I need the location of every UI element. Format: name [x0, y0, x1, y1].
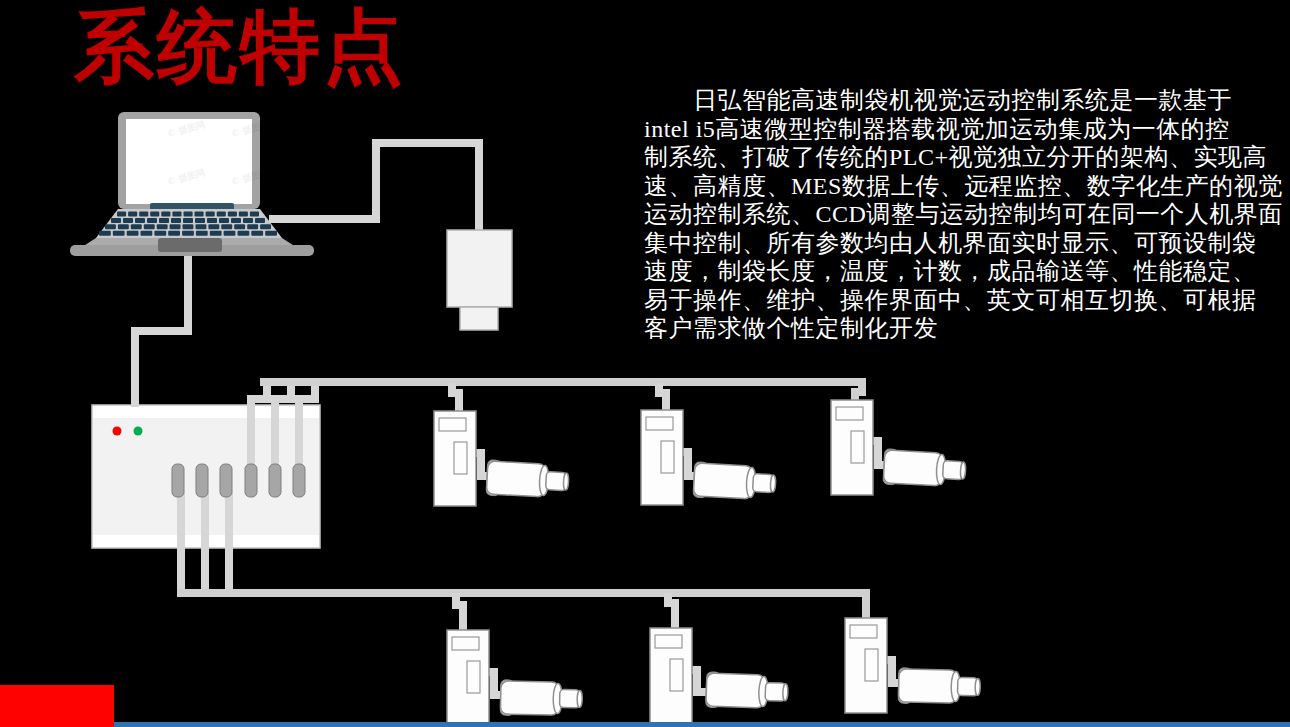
- laptop-key: [171, 218, 181, 223]
- controller-port-4: [245, 464, 257, 497]
- laptop-icon: © 摄图网 © 摄图网 © 摄图网 © 摄图网: [70, 112, 314, 256]
- laptop-key: [239, 212, 248, 217]
- servo-drive-icon-6: [845, 618, 887, 713]
- signal-bus-top: [260, 382, 862, 403]
- servo-drive-icon-5: [650, 628, 692, 723]
- bus-drop-top-1: [452, 383, 459, 413]
- laptop-key: [159, 218, 169, 223]
- servo-motors: [486, 449, 980, 716]
- servo-motor-icon-1: [486, 460, 569, 499]
- laptop-key: [147, 218, 157, 223]
- bus-drop-bottom-1: [456, 593, 463, 632]
- status-led-green: [134, 427, 143, 436]
- slide: 系统特点 日弘智能高速制袋机视觉运动控制系统是一款基于intel i5高速微型控…: [0, 0, 1290, 727]
- laptop-key: [265, 231, 277, 236]
- laptop-key: [210, 231, 222, 236]
- servo-drives: [434, 400, 887, 725]
- servo-motor-icon-4: [500, 680, 582, 716]
- laptop-touchpad: [158, 238, 222, 252]
- laptop-key: [99, 231, 111, 236]
- laptop-key: [170, 224, 181, 229]
- laptop-key: [184, 212, 193, 217]
- laptop-key: [135, 218, 145, 223]
- laptop-key: [196, 224, 207, 229]
- laptop-key: [105, 224, 116, 229]
- laptop-key: [117, 212, 126, 217]
- laptop-key: [141, 231, 153, 236]
- controller-port-2: [196, 464, 208, 497]
- controller-port-6: [293, 464, 305, 497]
- laptop-key: [260, 224, 271, 229]
- laptop-key: [238, 231, 250, 236]
- laptop-key: [221, 224, 232, 229]
- red-accent-block: [0, 685, 114, 727]
- controller-port-5: [269, 464, 281, 497]
- camera-lens: [460, 307, 498, 330]
- laptop-key: [182, 231, 194, 236]
- bus-drop-top-2: [659, 383, 666, 412]
- laptop-key: [139, 212, 148, 217]
- laptop-key: [228, 212, 237, 217]
- controller-port-1: [172, 464, 184, 497]
- laptop-key: [250, 212, 259, 217]
- servo-motor-icon-5: [706, 672, 789, 710]
- servo-drive-icon-1: [434, 411, 476, 506]
- laptop-key: [247, 224, 258, 229]
- servo-drive-icon-4: [447, 630, 489, 725]
- laptop-key: [183, 218, 193, 223]
- laptop-key: [255, 218, 265, 223]
- system-diagram: © 摄图网 © 摄图网 © 摄图网 © 摄图网: [0, 0, 1290, 727]
- laptop-key: [161, 212, 170, 217]
- laptop-key: [123, 218, 133, 223]
- laptop-key: [111, 218, 121, 223]
- laptop-key: [251, 231, 263, 236]
- laptop-key: [206, 212, 215, 217]
- bus-drop-bottom-2: [668, 593, 675, 630]
- bottom-blue-bar: [114, 722, 1290, 727]
- laptop-key: [150, 212, 159, 217]
- laptop-key: [131, 224, 142, 229]
- cable-laptop-to-camera: [269, 143, 479, 232]
- laptop-key: [196, 231, 208, 236]
- controller-top-strip: [93, 406, 319, 418]
- servo-drive-icon-3: [831, 400, 873, 495]
- laptop-key: [172, 212, 181, 217]
- laptop-key: [144, 224, 155, 229]
- servo-drive-icon-2: [641, 410, 683, 505]
- laptop-key: [157, 224, 168, 229]
- laptop-key: [183, 224, 194, 229]
- laptop-key: [113, 231, 125, 236]
- laptop-key: [168, 231, 180, 236]
- laptop-key: [217, 212, 226, 217]
- servo-motor-icon-6: [898, 668, 980, 704]
- laptop-key: [195, 218, 205, 223]
- laptop-key: [231, 218, 241, 223]
- servo-motor-icon-2: [693, 462, 776, 501]
- laptop-key: [234, 224, 245, 229]
- laptop-key: [224, 231, 236, 236]
- ccd-camera-icon: [447, 230, 512, 330]
- laptop-key: [219, 218, 229, 223]
- laptop-key: [154, 231, 166, 236]
- laptop-key: [127, 231, 139, 236]
- servo-motor-icon-3: [883, 449, 966, 488]
- laptop-key: [128, 212, 137, 217]
- cable-laptop-to-controller: [135, 250, 188, 407]
- laptop-key: [118, 224, 129, 229]
- laptop-key: [207, 218, 217, 223]
- controller-port-3: [220, 464, 232, 497]
- power-led-red: [113, 427, 122, 436]
- signal-bus-bottom: [177, 593, 866, 620]
- laptop-key: [195, 212, 204, 217]
- laptop-key: [243, 218, 253, 223]
- laptop-key: [208, 224, 219, 229]
